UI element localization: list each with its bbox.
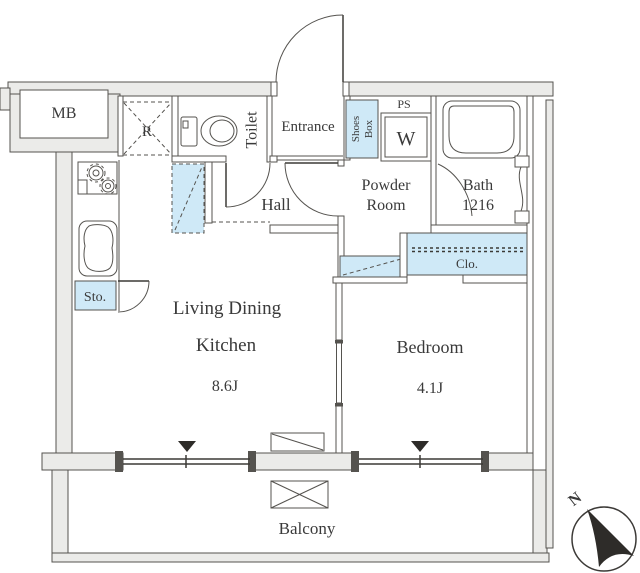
bath-label-line2: 1216 [462,197,494,214]
toilet-label: Toilet [244,111,261,149]
closet-label: Clo. [456,256,478,271]
kitchen-stove-icon [78,162,117,194]
ldk-label-line1: Living Dining [173,298,282,319]
bathtub-icon [443,101,520,158]
compass-icon: N [565,489,636,571]
bedroom-size-label: 4.1J [417,380,443,397]
powder-room-door [285,163,338,216]
balcony-label: Balcony [279,519,336,538]
powder-room-label-line2: Room [366,197,406,214]
floor-plan-page: N MB R Toilet Entrance Shoes Box PS W Po… [0,0,640,573]
bath-label-line1: Bath [463,177,493,194]
ldk-label-line2: Kitchen [196,335,257,356]
refrigerator-label: R [142,124,152,140]
entrance-door [276,15,343,82]
shoes-box-label-line1: Shoes [350,116,362,142]
ldk-window [115,441,256,472]
shoes-box-label-line2: Box [363,119,375,138]
bedroom-window [351,441,489,472]
bedroom-sliding-door [335,340,343,407]
storage-door [118,281,149,312]
counter-icon [271,433,324,451]
service-space-area [172,164,204,233]
storage-label: Sto. [84,290,106,305]
mb-label: MB [52,105,77,122]
compass-north-label: N [565,489,585,510]
ps-label: PS [397,97,410,111]
washer-label: W [397,128,416,150]
floor-plan: N MB R Toilet Entrance Shoes Box PS W Po… [0,0,640,573]
kitchen-sink-icon [79,221,117,276]
evacuation-hatch-icon [271,481,328,508]
ldk-size-label: 8.6J [212,378,238,395]
entrance-label: Entrance [281,119,335,135]
powder-room-label-line1: Powder [362,177,412,194]
bedroom-label: Bedroom [397,337,464,357]
hall-label: Hall [261,195,291,214]
toilet-icon [181,116,237,146]
